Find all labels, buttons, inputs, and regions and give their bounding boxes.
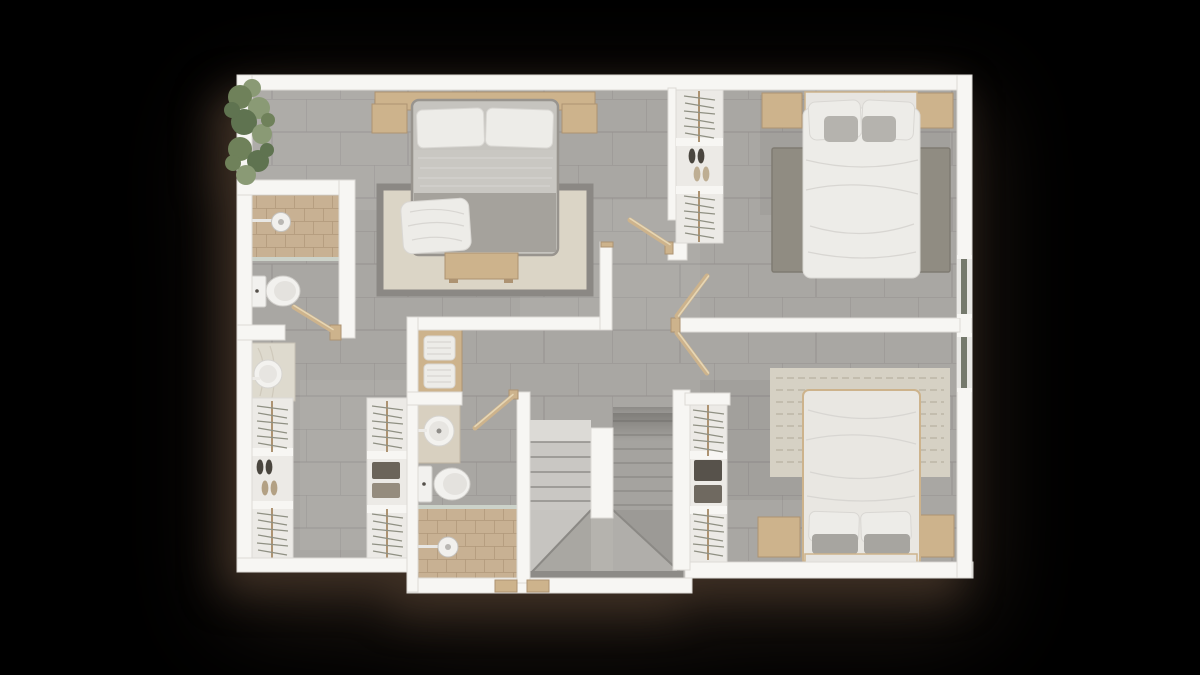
stairs-left-flight [530, 420, 591, 512]
wall-hall-stub [600, 242, 612, 330]
wall-stair-divider [591, 428, 613, 518]
bedroom3-nightstand-left [758, 517, 800, 557]
wall-exterior-bottom-left [237, 558, 410, 572]
foot-bench [445, 253, 518, 283]
bedroom-3 [758, 368, 954, 566]
hall-vanity [249, 343, 295, 401]
master-nightstand-left [372, 104, 407, 133]
threshold-right [527, 580, 549, 592]
wall-exterior-top [237, 75, 972, 90]
wall-bedroom3-closet-north [685, 393, 730, 405]
wall-bath1-north [237, 180, 355, 195]
wall-master-south [407, 317, 612, 330]
towel-shelf [418, 330, 462, 392]
toilet [418, 466, 470, 502]
accent-pillow [862, 116, 896, 142]
folded-clothes [372, 483, 400, 498]
window-bedroom3 [957, 333, 972, 392]
accent-pillow [864, 534, 910, 554]
folded-clothes [694, 460, 722, 481]
bedroom2-nightstand-left [762, 93, 802, 128]
bedroom-2 [762, 92, 953, 278]
bedroom3-bed [803, 390, 920, 566]
bathroom2-vanity [417, 404, 460, 463]
master-bedroom [372, 92, 597, 293]
shower-glass-screen [252, 257, 340, 261]
folded-clothes [694, 485, 722, 503]
wall-bedroom3-west [673, 390, 690, 570]
white-throw [400, 198, 471, 255]
wall-stair-west [517, 392, 530, 583]
wall-bath1-south [237, 325, 285, 340]
scene-background [0, 0, 1200, 675]
wall-bedroom2-3-divider [673, 318, 960, 332]
threshold-left [495, 580, 517, 592]
folded-clothes [372, 462, 400, 479]
shower-glass-screen [418, 505, 517, 509]
wall-bedroom2-closet-west [668, 88, 676, 220]
master-nightstand-right [562, 104, 597, 133]
master-bed [400, 100, 558, 255]
wall-bath2-west [407, 317, 418, 592]
shower-floor [252, 195, 340, 258]
toilet [251, 276, 300, 307]
accent-pillow [812, 534, 858, 554]
floor-plan [0, 0, 1200, 675]
wall-exterior-bottom-right [685, 562, 973, 578]
pillow [416, 108, 484, 148]
door-sill [601, 242, 613, 247]
bedroom2-closet [676, 90, 723, 243]
bedroom3-closet [690, 405, 727, 562]
shower-floor [418, 509, 517, 578]
wall-bath2-north [407, 392, 462, 405]
stairs-winders [530, 510, 683, 578]
accent-pillow [824, 116, 858, 142]
door-sill [671, 318, 680, 332]
bedroom2-bed [803, 92, 920, 278]
wall-bath1-east [339, 180, 355, 338]
pillow [485, 108, 553, 148]
window-bedroom2 [957, 255, 972, 318]
